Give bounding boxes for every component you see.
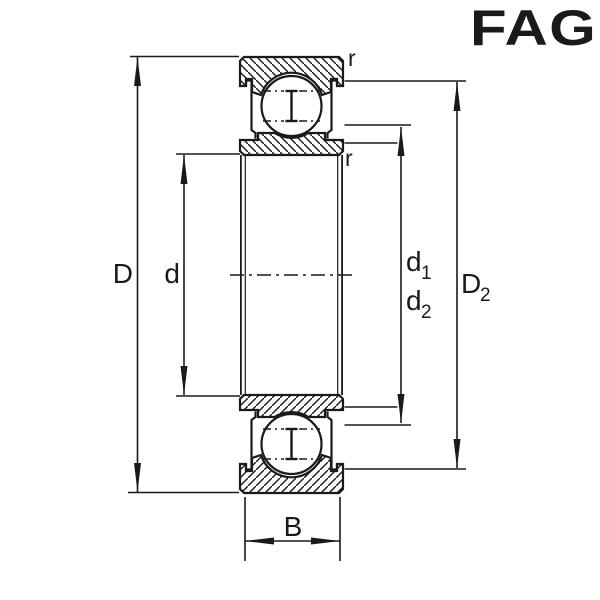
label-bore-diameter-d: d: [164, 258, 180, 289]
label-fillet-radius-top-r: r: [348, 45, 356, 71]
bearing-top-section: [240, 57, 343, 155]
label-D2-subscript: 2: [480, 285, 491, 306]
bearing-technical-drawing: D d d 1 d 2 D 2 B r r FAG: [0, 0, 600, 600]
bearing-bottom-section: [240, 395, 343, 493]
label-outer-diameter-D: D: [113, 258, 133, 289]
label-fillet-radius-bottom-r: r: [345, 145, 353, 171]
label-d2-subscript: 2: [421, 302, 432, 323]
label-d1-subscript: 1: [421, 263, 432, 284]
label-width-B: B: [284, 511, 303, 542]
label-d1: d: [406, 246, 422, 277]
label-d2: d: [406, 285, 422, 316]
bearing-drawing-page: D d d 1 d 2 D 2 B r r FAG: [0, 0, 600, 600]
label-D2: D: [461, 268, 481, 299]
fag-logo: FAG: [470, 0, 597, 56]
